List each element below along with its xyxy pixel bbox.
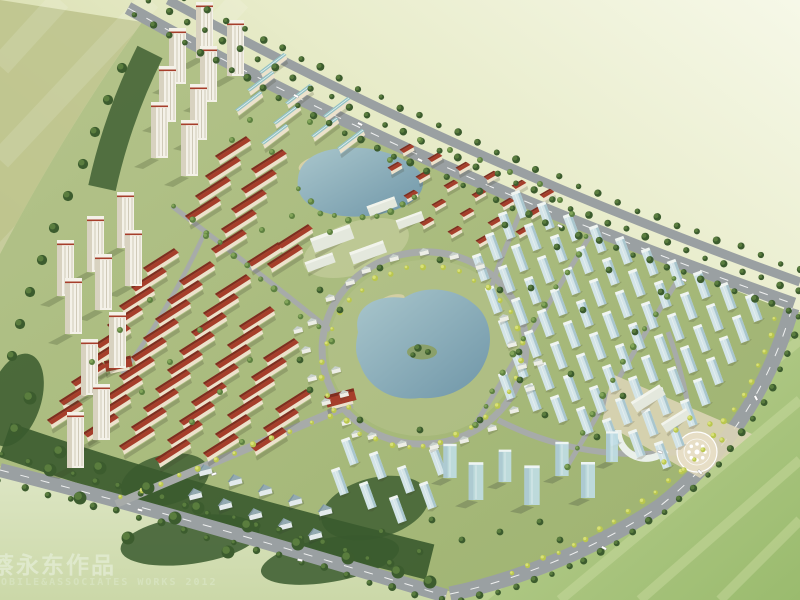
- rendering-canvas: [0, 0, 800, 600]
- aerial-masterplan-rendering: 蔡永东作品 MOBILE&ASSOCIATES WORKS 2012: [0, 0, 800, 600]
- central-lake: [356, 289, 490, 398]
